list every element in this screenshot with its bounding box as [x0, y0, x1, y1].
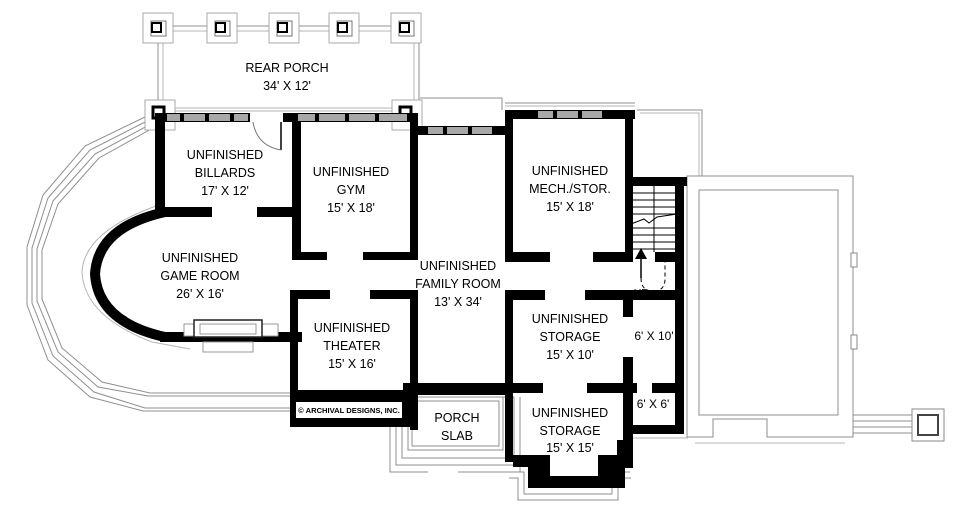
room-label-storage-lower: UNFINISHED STORAGE 15' X 15'	[532, 406, 608, 455]
svg-text:6' X 6': 6' X 6'	[637, 397, 670, 411]
svg-text:UNFINISHED: UNFINISHED	[532, 164, 608, 178]
svg-text:UNFINISHED: UNFINISHED	[162, 251, 238, 265]
svg-text:UNFINISHED: UNFINISHED	[420, 259, 496, 273]
room-label-6x6: 6' X 6'	[637, 397, 670, 411]
svg-text:STORAGE: STORAGE	[540, 330, 601, 344]
room-label-game-room: UNFINISHED GAME ROOM 26' X 16'	[160, 251, 239, 301]
svg-text:15' X 16': 15' X 16'	[328, 357, 376, 371]
bay-wall	[95, 212, 165, 337]
porch-column	[329, 13, 359, 43]
svg-text:UNFINISHED: UNFINISHED	[313, 165, 389, 179]
window	[538, 111, 602, 118]
window	[298, 114, 407, 121]
porch-door	[253, 122, 281, 150]
svg-text:13' X 34': 13' X 34'	[434, 295, 482, 309]
room-label-storage-upper: UNFINISHED STORAGE 15' X 10'	[532, 312, 608, 362]
side-stoop-pier	[853, 409, 944, 441]
svg-text:THEATER: THEATER	[323, 339, 380, 353]
svg-text:26' X 16': 26' X 16'	[176, 287, 224, 301]
svg-text:UNFINISHED: UNFINISHED	[314, 321, 390, 335]
svg-text:REAR PORCH: REAR PORCH	[245, 61, 328, 75]
svg-text:UNFINISHED: UNFINISHED	[532, 406, 608, 420]
svg-text:FAMILY ROOM: FAMILY ROOM	[415, 277, 501, 291]
svg-text:15' X 18': 15' X 18'	[327, 201, 375, 215]
up-label: UP	[634, 287, 649, 299]
room-label-gym: UNFINISHED GYM 15' X 18'	[313, 165, 389, 215]
svg-text:6' X 10': 6' X 10'	[634, 329, 673, 343]
svg-text:PORCH: PORCH	[434, 411, 479, 425]
porch-column	[391, 13, 421, 43]
svg-text:BILLARDS: BILLARDS	[195, 166, 255, 180]
svg-text:STORAGE: STORAGE	[540, 424, 601, 438]
copyright-plate: © ARCHIVAL DESIGNS, INC.	[296, 402, 402, 418]
porch-column	[143, 13, 173, 43]
room-label-billiards: UNFINISHED BILLARDS 17' X 12'	[187, 148, 263, 198]
room-label-6x10: 6' X 10'	[634, 329, 673, 343]
svg-text:15' X 10': 15' X 10'	[546, 348, 594, 362]
floor-plan-drawing: © ARCHIVAL DESIGNS, INC. REAR PORCH 34' …	[0, 0, 960, 522]
room-label-porch-slab: PORCH SLAB	[434, 411, 479, 443]
porch-column	[269, 13, 299, 43]
window	[428, 127, 492, 134]
svg-text:GAME ROOM: GAME ROOM	[160, 269, 239, 283]
room-label-rear-porch: REAR PORCH 34' X 12'	[245, 61, 328, 93]
svg-text:34' X 12': 34' X 12'	[263, 79, 311, 93]
window	[167, 114, 248, 121]
staircase	[631, 186, 677, 291]
svg-text:SLAB: SLAB	[441, 429, 473, 443]
porch-column	[207, 13, 237, 43]
svg-text:15' X 18': 15' X 18'	[546, 200, 594, 214]
copyright-text: © ARCHIVAL DESIGNS, INC.	[298, 406, 400, 415]
room-label-theater: UNFINISHED THEATER 15' X 16'	[314, 321, 390, 371]
svg-text:UNFINISHED: UNFINISHED	[532, 312, 608, 326]
svg-text:UNFINISHED: UNFINISHED	[187, 148, 263, 162]
svg-text:15' X 15': 15' X 15'	[546, 441, 594, 455]
window-well	[184, 320, 278, 352]
room-label-mech-stor: UNFINISHED MECH./STOR. 15' X 18'	[529, 164, 611, 214]
svg-text:MECH./STOR.: MECH./STOR.	[529, 182, 611, 196]
floor-plan-page: © ARCHIVAL DESIGNS, INC. REAR PORCH 34' …	[0, 0, 960, 522]
room-label-family-room: UNFINISHED FAMILY ROOM 13' X 34'	[415, 259, 501, 309]
svg-text:GYM: GYM	[337, 183, 365, 197]
svg-text:17' X 12': 17' X 12'	[201, 184, 249, 198]
